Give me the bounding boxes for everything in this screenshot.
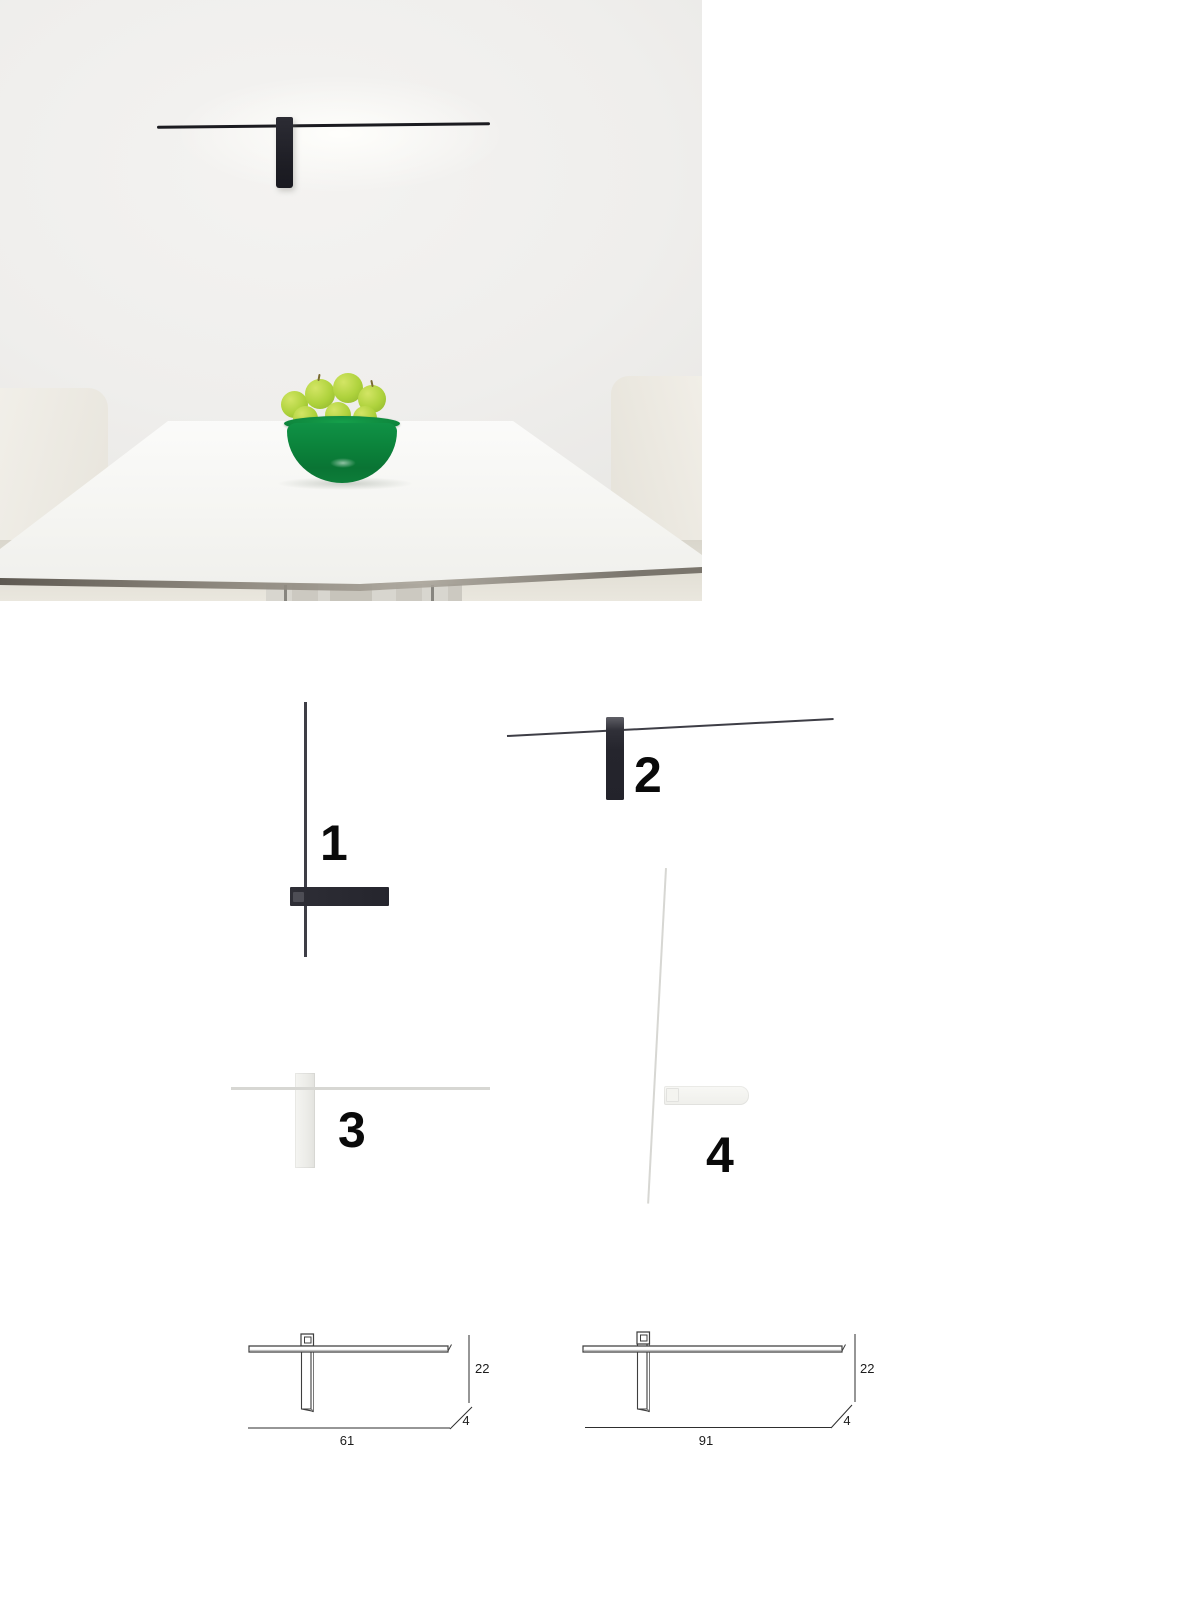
catalog-page: 1 2 3 4 xyxy=(0,0,1200,1600)
dimension-drawing-size-61: 22 4 61 xyxy=(230,1318,490,1450)
variant-4-rod xyxy=(647,868,667,1204)
variant-4-mount xyxy=(666,1088,679,1102)
product-photo xyxy=(0,0,702,601)
variant-2-label: 2 xyxy=(634,750,662,800)
apple-stem xyxy=(370,380,373,387)
variant-1-body xyxy=(290,887,389,906)
drawing-mount-window xyxy=(641,1335,648,1341)
variant-4-label: 4 xyxy=(706,1130,734,1180)
height-dim-label: 22 xyxy=(860,1361,874,1376)
table-leg xyxy=(431,585,434,601)
depth-dim-label: 4 xyxy=(462,1413,469,1428)
drawing-mount-window xyxy=(305,1337,312,1343)
width-dim-label: 61 xyxy=(340,1433,354,1448)
variant-1-mount xyxy=(293,892,304,902)
lamp-glow xyxy=(128,58,552,210)
variant-1-label: 1 xyxy=(320,818,348,868)
variant-3-label: 3 xyxy=(338,1105,366,1155)
drawing-bar xyxy=(249,1346,448,1352)
variant-2-body xyxy=(606,717,624,800)
drawing-bar xyxy=(583,1346,842,1352)
width-dim-label: 91 xyxy=(699,1433,713,1448)
height-dim-label: 22 xyxy=(475,1361,489,1376)
depth-dim-label: 4 xyxy=(843,1413,850,1428)
variant-4-body xyxy=(664,1086,749,1105)
dimension-drawing-size-91: 22 4 91 xyxy=(560,1318,880,1450)
variant-1-rod xyxy=(304,702,307,957)
variant-3-rod xyxy=(231,1087,490,1090)
bowl-highlight xyxy=(330,458,356,468)
photo-lamp-body xyxy=(276,117,293,188)
variant-2-rod xyxy=(507,718,834,737)
